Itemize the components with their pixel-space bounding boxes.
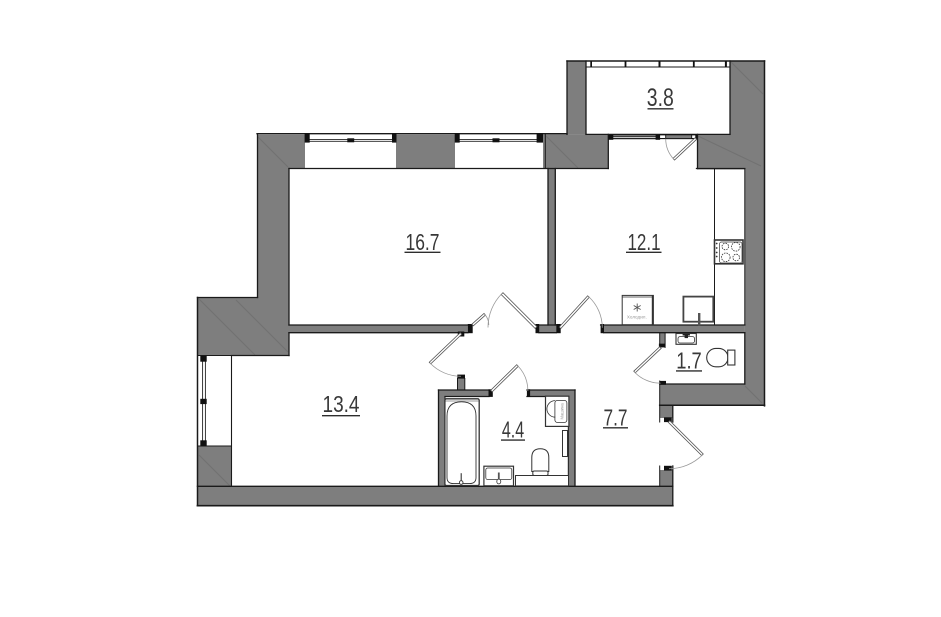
svg-text:13.4: 13.4 (323, 391, 360, 417)
svg-text:16.7: 16.7 (406, 229, 440, 255)
svg-text:Холодил.: Холодил. (627, 314, 647, 319)
svg-text:7.7: 7.7 (604, 404, 628, 430)
svg-text:4.4: 4.4 (502, 416, 524, 442)
svg-text:12.1: 12.1 (628, 229, 661, 255)
svg-text:Машина: Машина (560, 403, 565, 420)
svg-text:1.7: 1.7 (676, 348, 702, 374)
svg-text:3.8: 3.8 (647, 84, 674, 112)
